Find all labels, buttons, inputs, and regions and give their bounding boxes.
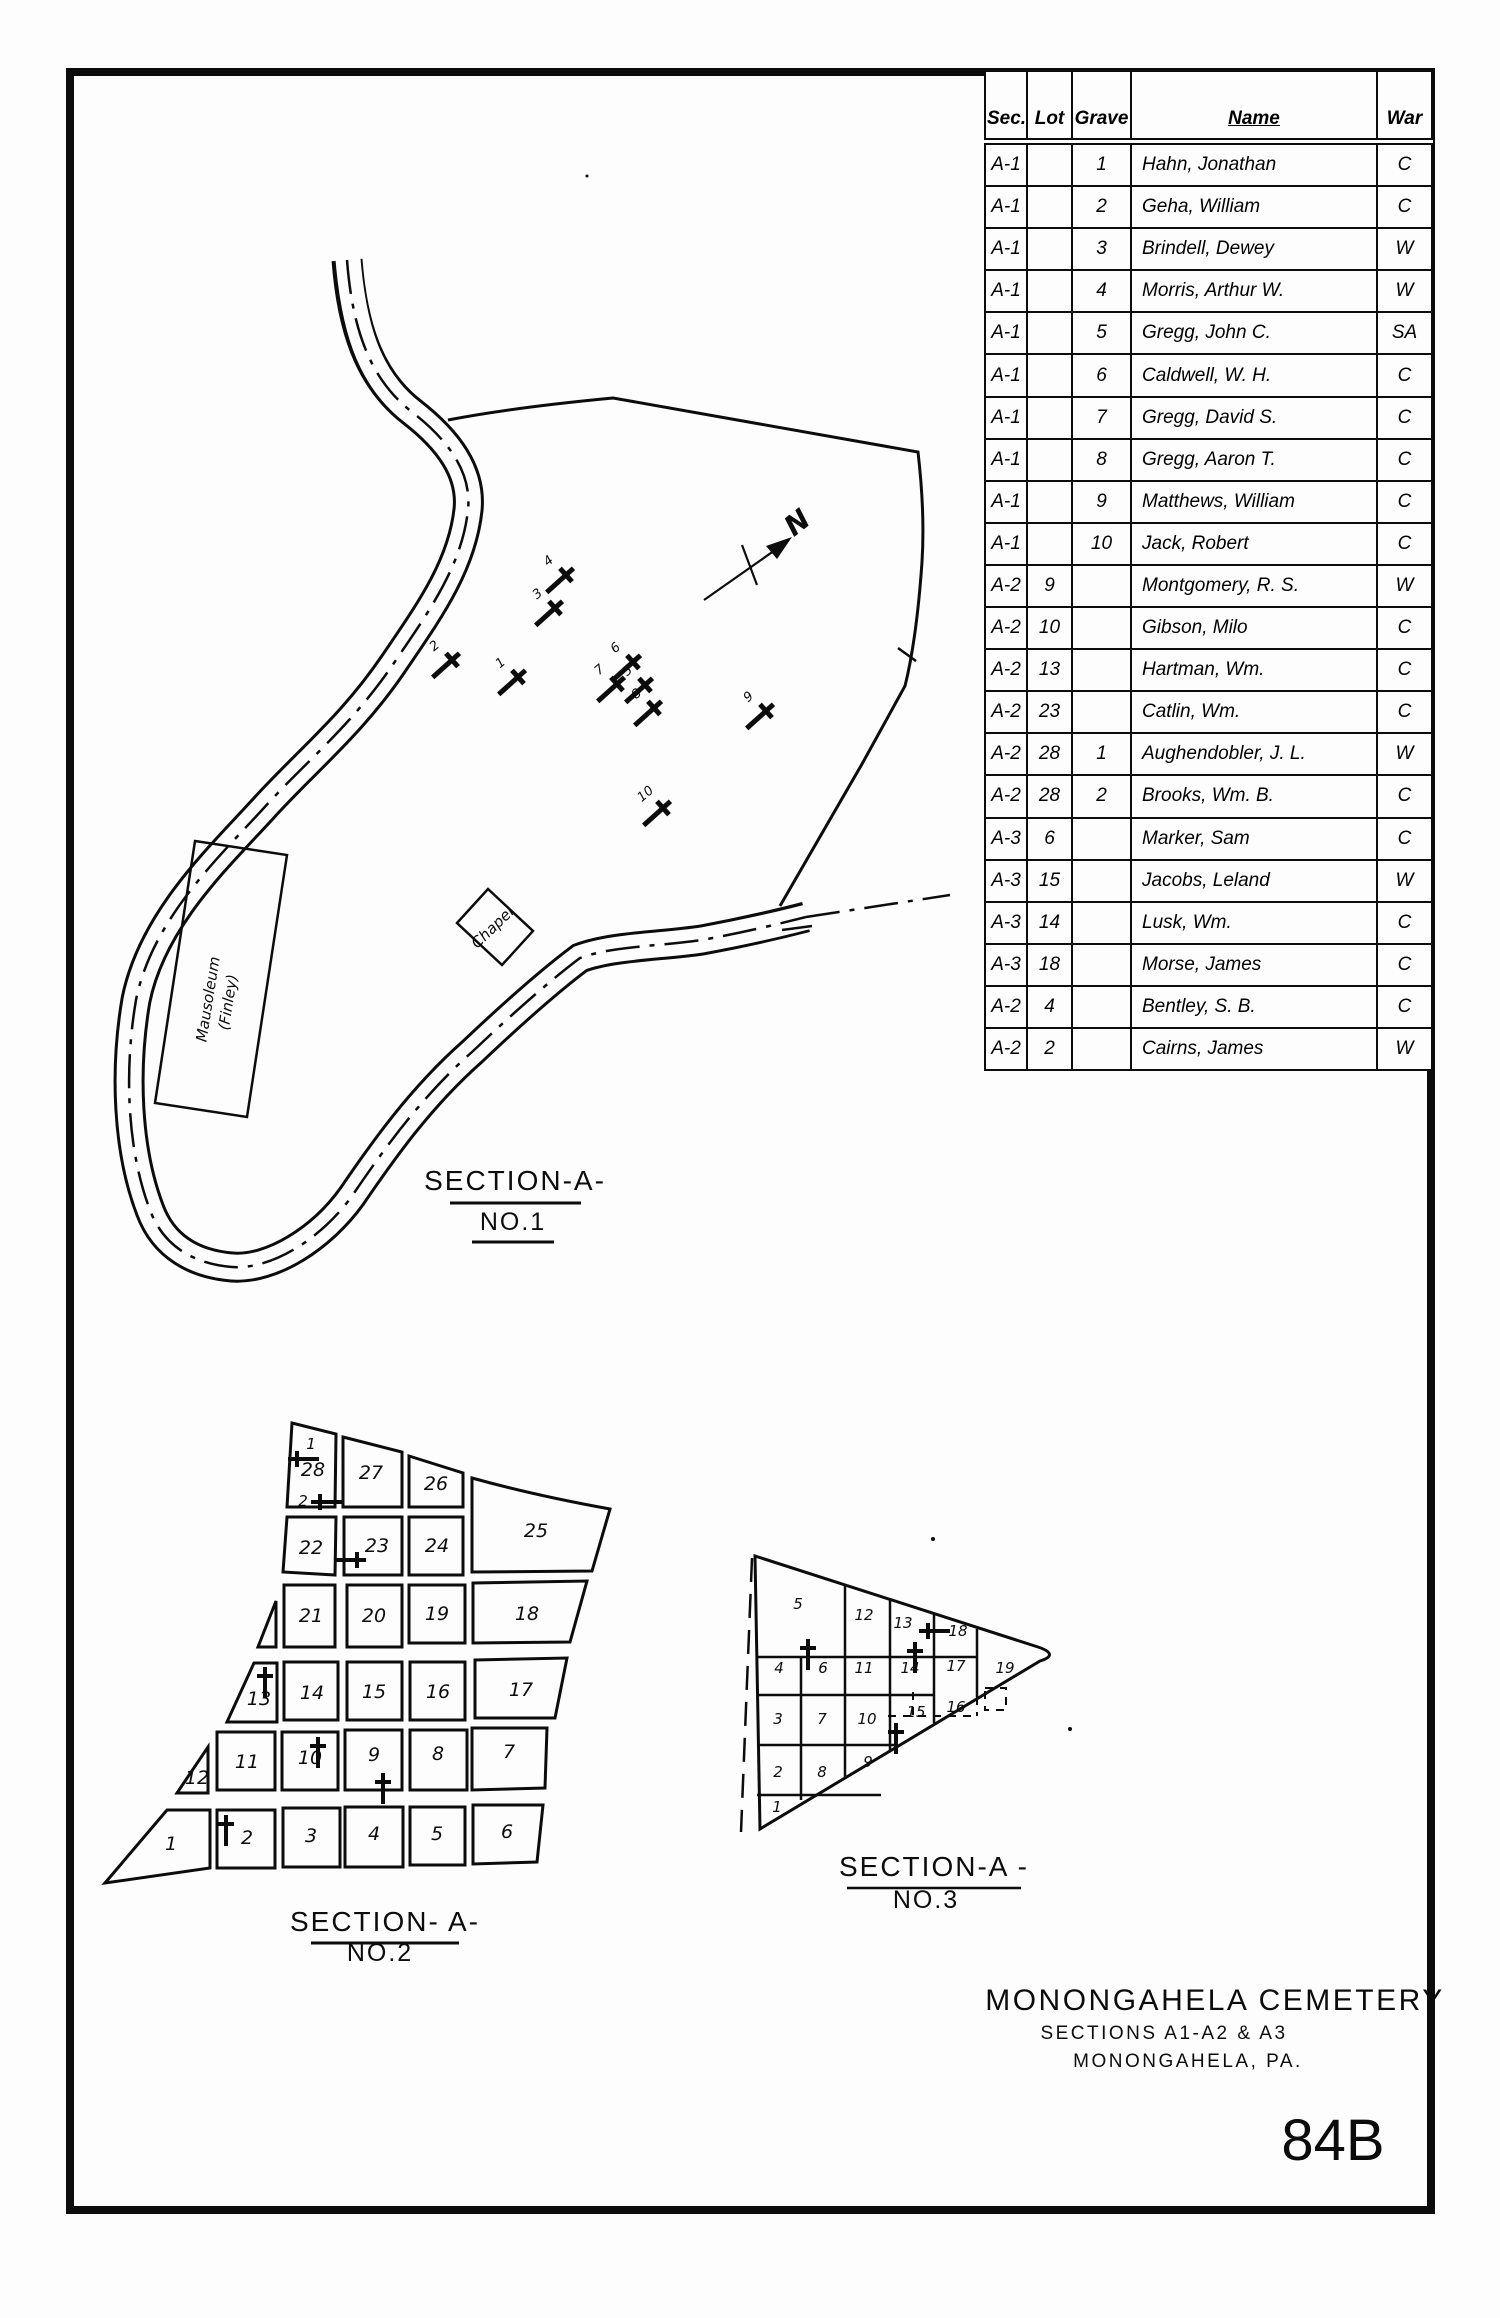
cell-war: C <box>1377 481 1432 523</box>
table-row: A-19Matthews, WilliamC <box>985 481 1432 523</box>
cell-grave: 5 <box>1072 312 1131 354</box>
cell-grave: 10 <box>1072 523 1131 565</box>
cell-lot: 13 <box>1027 649 1072 691</box>
cell-name: Montgomery, R. S. <box>1131 565 1377 607</box>
table-row: A-210Gibson, MiloC <box>985 607 1432 649</box>
grave-number: 4 <box>541 553 557 570</box>
title-line-2: SECTIONS A1-A2 & A3 <box>1040 2023 1287 2044</box>
grave-number: 2 <box>427 638 443 655</box>
lot-number: 5 <box>431 1823 443 1845</box>
lot-number: 7 <box>503 1741 515 1763</box>
cell-sec: A-3 <box>985 818 1027 860</box>
cell-lot: 23 <box>1027 691 1072 733</box>
speck <box>1068 1727 1072 1731</box>
cell-grave <box>1072 649 1131 691</box>
lot-number: 24 <box>425 1535 449 1557</box>
lot-number: 19 <box>425 1603 449 1625</box>
cell-war: C <box>1377 902 1432 944</box>
cell-name: Jack, Robert <box>1131 523 1377 565</box>
section-a3-crosses <box>800 1623 950 1754</box>
cell-lot <box>1027 523 1072 565</box>
cell-lot <box>1027 312 1072 354</box>
grave-cross <box>427 647 466 684</box>
cell-war: C <box>1377 439 1432 481</box>
cell-sec: A-3 <box>985 944 1027 986</box>
col-header-sec: Sec. <box>985 71 1027 142</box>
lot-number: 8 <box>432 1743 444 1765</box>
grave-cross <box>493 664 532 701</box>
lot-number: 9 <box>863 1753 873 1771</box>
table-row: A-110Jack, RobertC <box>985 523 1432 565</box>
cell-name: Morris, Arthur W. <box>1131 270 1377 312</box>
cell-sec: A-1 <box>985 481 1027 523</box>
cell-war: W <box>1377 1028 1432 1070</box>
cell-war: C <box>1377 354 1432 396</box>
cell-grave <box>1072 607 1131 649</box>
grave-cross <box>335 1552 366 1568</box>
table-row: A-2281Aughendobler, J. L.W <box>985 733 1432 775</box>
cell-grave: 1 <box>1072 733 1131 775</box>
lot-number: 10 <box>857 1710 876 1728</box>
cell-lot: 28 <box>1027 733 1072 775</box>
cell-name: Aughendobler, J. L. <box>1131 733 1377 775</box>
cell-lot <box>1027 439 1072 481</box>
cell-name: Gregg, Aaron T. <box>1131 439 1377 481</box>
cell-sec: A-1 <box>985 523 1027 565</box>
cell-grave: 2 <box>1072 186 1131 228</box>
section-a2-lot-outlines <box>105 1423 610 1883</box>
cell-name: Gregg, John C. <box>1131 312 1377 354</box>
lot-number: 15 <box>906 1703 925 1721</box>
speck <box>931 1537 935 1541</box>
cell-war: W <box>1377 565 1432 607</box>
section-a1-boundary <box>448 398 923 906</box>
cell-grave <box>1072 902 1131 944</box>
cell-grave <box>1072 860 1131 902</box>
grave-cross <box>741 698 780 735</box>
section-a2-crosses: 12 <box>218 1435 391 1846</box>
lot-number: 1 <box>165 1833 177 1855</box>
speck <box>586 175 589 178</box>
cell-grave: 8 <box>1072 439 1131 481</box>
road-outline <box>129 260 806 1267</box>
cell-war: C <box>1377 523 1432 565</box>
cell-name: Hahn, Jonathan <box>1131 142 1377 187</box>
table-row: A-29Montgomery, R. S.W <box>985 565 1432 607</box>
grave-cross <box>800 1639 816 1670</box>
lot-number: 16 <box>426 1681 450 1703</box>
lot-number: 17 <box>946 1657 966 1675</box>
cell-lot: 28 <box>1027 775 1072 817</box>
cell-grave: 4 <box>1072 270 1131 312</box>
cell-lot: 6 <box>1027 818 1072 860</box>
table-row: A-36Marker, SamC <box>985 818 1432 860</box>
cell-war: C <box>1377 607 1432 649</box>
lot-number: 13 <box>893 1614 912 1632</box>
burial-table: Sec. Lot Grave Name War A-11Hahn, Jonath… <box>984 70 1433 1071</box>
table-row: A-18Gregg, Aaron T.C <box>985 439 1432 481</box>
lot-number: 12 <box>185 1767 209 1789</box>
road-centerline-extension <box>806 895 950 917</box>
cell-sec: A-2 <box>985 733 1027 775</box>
lot-number: 18 <box>948 1622 967 1640</box>
cell-lot: 10 <box>1027 607 1072 649</box>
lot-number: 14 <box>300 1682 324 1704</box>
cell-war: W <box>1377 733 1432 775</box>
cell-grave <box>1072 691 1131 733</box>
cell-grave: 7 <box>1072 397 1131 439</box>
col-header-lot: Lot <box>1027 71 1072 142</box>
table-row: A-22Cairns, JamesW <box>985 1028 1432 1070</box>
cell-sec: A-1 <box>985 312 1027 354</box>
lot-number: 26 <box>424 1473 448 1495</box>
table-row: A-213Hartman, Wm.C <box>985 649 1432 691</box>
lot-number: 1 <box>772 1798 782 1816</box>
drawing-sheet: N Chapel Mausoleum (Finley) 12345678910 … <box>0 0 1500 2318</box>
table-row: A-12Geha, WilliamC <box>985 186 1432 228</box>
lot-number: 11 <box>235 1751 259 1773</box>
table-row: A-14Morris, Arthur W.W <box>985 270 1432 312</box>
section-a1-subtitle: NO.1 <box>480 1208 546 1236</box>
north-arrow: N <box>704 502 817 600</box>
grave-cross <box>541 562 580 599</box>
cell-name: Matthews, William <box>1131 481 1377 523</box>
lot-number: 7 <box>817 1710 827 1728</box>
lot-number: 19 <box>995 1659 1014 1677</box>
lot-number: 23 <box>365 1535 389 1557</box>
grave-number: 2 <box>298 1492 308 1510</box>
grave-number: 1 <box>493 655 509 672</box>
cell-name: Marker, Sam <box>1131 818 1377 860</box>
cell-lot: 4 <box>1027 986 1072 1028</box>
lot-number: 13 <box>247 1688 271 1710</box>
cell-war: C <box>1377 691 1432 733</box>
title-line-1: MONONGAHELA CEMETERY <box>985 1984 1445 2017</box>
lot-number: 16 <box>946 1698 965 1716</box>
lot-number: 3 <box>305 1825 317 1847</box>
section-a3-map: 51213184611141719371015162891 SECTION-A … <box>741 1556 1050 1914</box>
cell-sec: A-1 <box>985 186 1027 228</box>
cell-grave <box>1072 944 1131 986</box>
lot-number: 2 <box>773 1763 783 1781</box>
lot-number: 11 <box>854 1659 873 1677</box>
cell-name: Morse, James <box>1131 944 1377 986</box>
col-header-name: Name <box>1131 71 1377 142</box>
table-row: A-16Caldwell, W. H.C <box>985 354 1432 396</box>
lot-number: 8 <box>817 1763 827 1781</box>
cell-grave <box>1072 565 1131 607</box>
table-row: A-318Morse, JamesC <box>985 944 1432 986</box>
grave-number: 3 <box>530 586 546 603</box>
grave-number: 9 <box>741 689 757 706</box>
lot-number: 3 <box>773 1710 783 1728</box>
cell-grave <box>1072 1028 1131 1070</box>
table-row: A-24Bentley, S. B.C <box>985 986 1432 1028</box>
table-row: A-2282Brooks, Wm. B.C <box>985 775 1432 817</box>
north-label: N <box>778 502 817 542</box>
cell-war: W <box>1377 270 1432 312</box>
lot-number: 18 <box>515 1603 539 1625</box>
cell-sec: A-3 <box>985 902 1027 944</box>
lot-number: 20 <box>362 1605 386 1627</box>
table-row: A-314Lusk, Wm.C <box>985 902 1432 944</box>
table-row: A-11Hahn, JonathanC <box>985 142 1432 187</box>
cell-sec: A-2 <box>985 607 1027 649</box>
lot-number: 28 <box>301 1459 325 1481</box>
cell-war: C <box>1377 649 1432 691</box>
table-header-row: Sec. Lot Grave Name War <box>985 71 1432 142</box>
cell-sec: A-1 <box>985 439 1027 481</box>
cell-sec: A-1 <box>985 142 1027 187</box>
cell-war: SA <box>1377 312 1432 354</box>
section-a1-map: N Chapel Mausoleum (Finley) 12345678910 … <box>129 246 950 1267</box>
cell-lot <box>1027 270 1072 312</box>
grave-number: 10 <box>635 783 657 805</box>
section-a2-map: 2827262522232421201918131415161712111098… <box>105 1423 610 1967</box>
cell-grave: 3 <box>1072 228 1131 270</box>
cell-name: Gibson, Milo <box>1131 607 1377 649</box>
grave-number: 7 <box>592 661 609 678</box>
cell-war: C <box>1377 775 1432 817</box>
cell-sec: A-2 <box>985 565 1027 607</box>
chapel-building: Chapel <box>457 889 533 965</box>
section-a3-title: SECTION-A - <box>839 1851 1029 1882</box>
lot-number: 6 <box>818 1659 828 1677</box>
cell-war: C <box>1377 818 1432 860</box>
cell-name: Catlin, Wm. <box>1131 691 1377 733</box>
cell-sec: A-1 <box>985 354 1027 396</box>
lot-number: 9 <box>368 1744 380 1766</box>
cell-name: Hartman, Wm. <box>1131 649 1377 691</box>
cell-war: C <box>1377 186 1432 228</box>
cell-war: C <box>1377 944 1432 986</box>
cell-name: Jacobs, Leland <box>1131 860 1377 902</box>
lot-number: 12 <box>854 1606 873 1624</box>
cell-lot <box>1027 354 1072 396</box>
cell-grave: 2 <box>1072 775 1131 817</box>
road-centerline <box>129 260 806 1267</box>
cell-lot: 18 <box>1027 944 1072 986</box>
lot-number: 22 <box>299 1537 323 1559</box>
cell-lot <box>1027 397 1072 439</box>
cell-lot: 9 <box>1027 565 1072 607</box>
section-a2-subtitle: NO.2 <box>347 1939 413 1967</box>
grave-cross <box>530 595 569 632</box>
cell-grave <box>1072 986 1131 1028</box>
lot-number: 27 <box>359 1462 383 1484</box>
cell-name: Brindell, Dewey <box>1131 228 1377 270</box>
cell-grave: 6 <box>1072 354 1131 396</box>
cell-lot <box>1027 228 1072 270</box>
cell-sec: A-1 <box>985 397 1027 439</box>
lot-number: 25 <box>524 1520 548 1542</box>
section-a3-dashed-edge <box>741 1558 752 1832</box>
lot-number: 2 <box>241 1827 253 1849</box>
section-a1-title: SECTION-A- <box>424 1165 606 1196</box>
cell-lot: 14 <box>1027 902 1072 944</box>
title-line-3: MONONGAHELA, PA. <box>1073 2051 1303 2072</box>
lot-number: 15 <box>362 1681 386 1703</box>
cell-war: C <box>1377 986 1432 1028</box>
section-a2-title: SECTION- A- <box>290 1906 480 1937</box>
cell-name: Brooks, Wm. B. <box>1131 775 1377 817</box>
cell-sec: A-1 <box>985 270 1027 312</box>
section-a3-subtitle: NO.3 <box>893 1886 959 1914</box>
section-a1-graves: 12345678910 <box>427 553 780 832</box>
cell-name: Caldwell, W. H. <box>1131 354 1377 396</box>
cell-lot <box>1027 186 1072 228</box>
cell-name: Gregg, David S. <box>1131 397 1377 439</box>
lot-number: 21 <box>299 1605 323 1627</box>
chapel-label: Chapel <box>468 902 519 952</box>
cell-sec: A-2 <box>985 649 1027 691</box>
col-header-war: War <box>1377 71 1432 142</box>
cell-grave <box>1072 818 1131 860</box>
cell-sec: A-2 <box>985 691 1027 733</box>
grave-number: 1 <box>306 1435 316 1453</box>
cell-war: W <box>1377 860 1432 902</box>
col-header-grave: Grave <box>1072 71 1131 142</box>
lot-number: 6 <box>501 1821 513 1843</box>
grave-cross <box>218 1815 234 1846</box>
cell-sec: A-2 <box>985 1028 1027 1070</box>
cell-sec: A-2 <box>985 986 1027 1028</box>
lot-number: 4 <box>368 1823 380 1845</box>
cell-lot <box>1027 481 1072 523</box>
table-row: A-315Jacobs, LelandW <box>985 860 1432 902</box>
cell-name: Cairns, James <box>1131 1028 1377 1070</box>
table-row: A-13Brindell, DeweyW <box>985 228 1432 270</box>
cell-grave: 1 <box>1072 142 1131 187</box>
cell-sec: A-2 <box>985 775 1027 817</box>
lot-number: 4 <box>774 1659 784 1677</box>
grave-cross <box>629 695 668 732</box>
cell-name: Geha, William <box>1131 186 1377 228</box>
cell-sec: A-1 <box>985 228 1027 270</box>
cell-name: Bentley, S. B. <box>1131 986 1377 1028</box>
title-block: MONONGAHELA CEMETERY SECTIONS A1-A2 & A3… <box>985 1984 1445 2173</box>
grave-cross <box>592 671 631 708</box>
cell-lot <box>1027 142 1072 187</box>
table-row: A-15Gregg, John C.SA <box>985 312 1432 354</box>
cell-war: C <box>1377 397 1432 439</box>
table-row: A-17Gregg, David S.C <box>985 397 1432 439</box>
lot-number: 17 <box>509 1679 533 1701</box>
cell-war: W <box>1377 228 1432 270</box>
cell-sec: A-3 <box>985 860 1027 902</box>
cell-war: C <box>1377 142 1432 187</box>
grave-number: 6 <box>608 640 624 657</box>
sheet-number: 84B <box>1281 2108 1384 2173</box>
cell-name: Lusk, Wm. <box>1131 902 1377 944</box>
mausoleum-building: Mausoleum (Finley) <box>155 841 287 1117</box>
cell-grave: 9 <box>1072 481 1131 523</box>
cell-lot: 2 <box>1027 1028 1072 1070</box>
lot-number: 5 <box>793 1595 803 1613</box>
cell-lot: 15 <box>1027 860 1072 902</box>
table-row: A-223Catlin, Wm.C <box>985 691 1432 733</box>
